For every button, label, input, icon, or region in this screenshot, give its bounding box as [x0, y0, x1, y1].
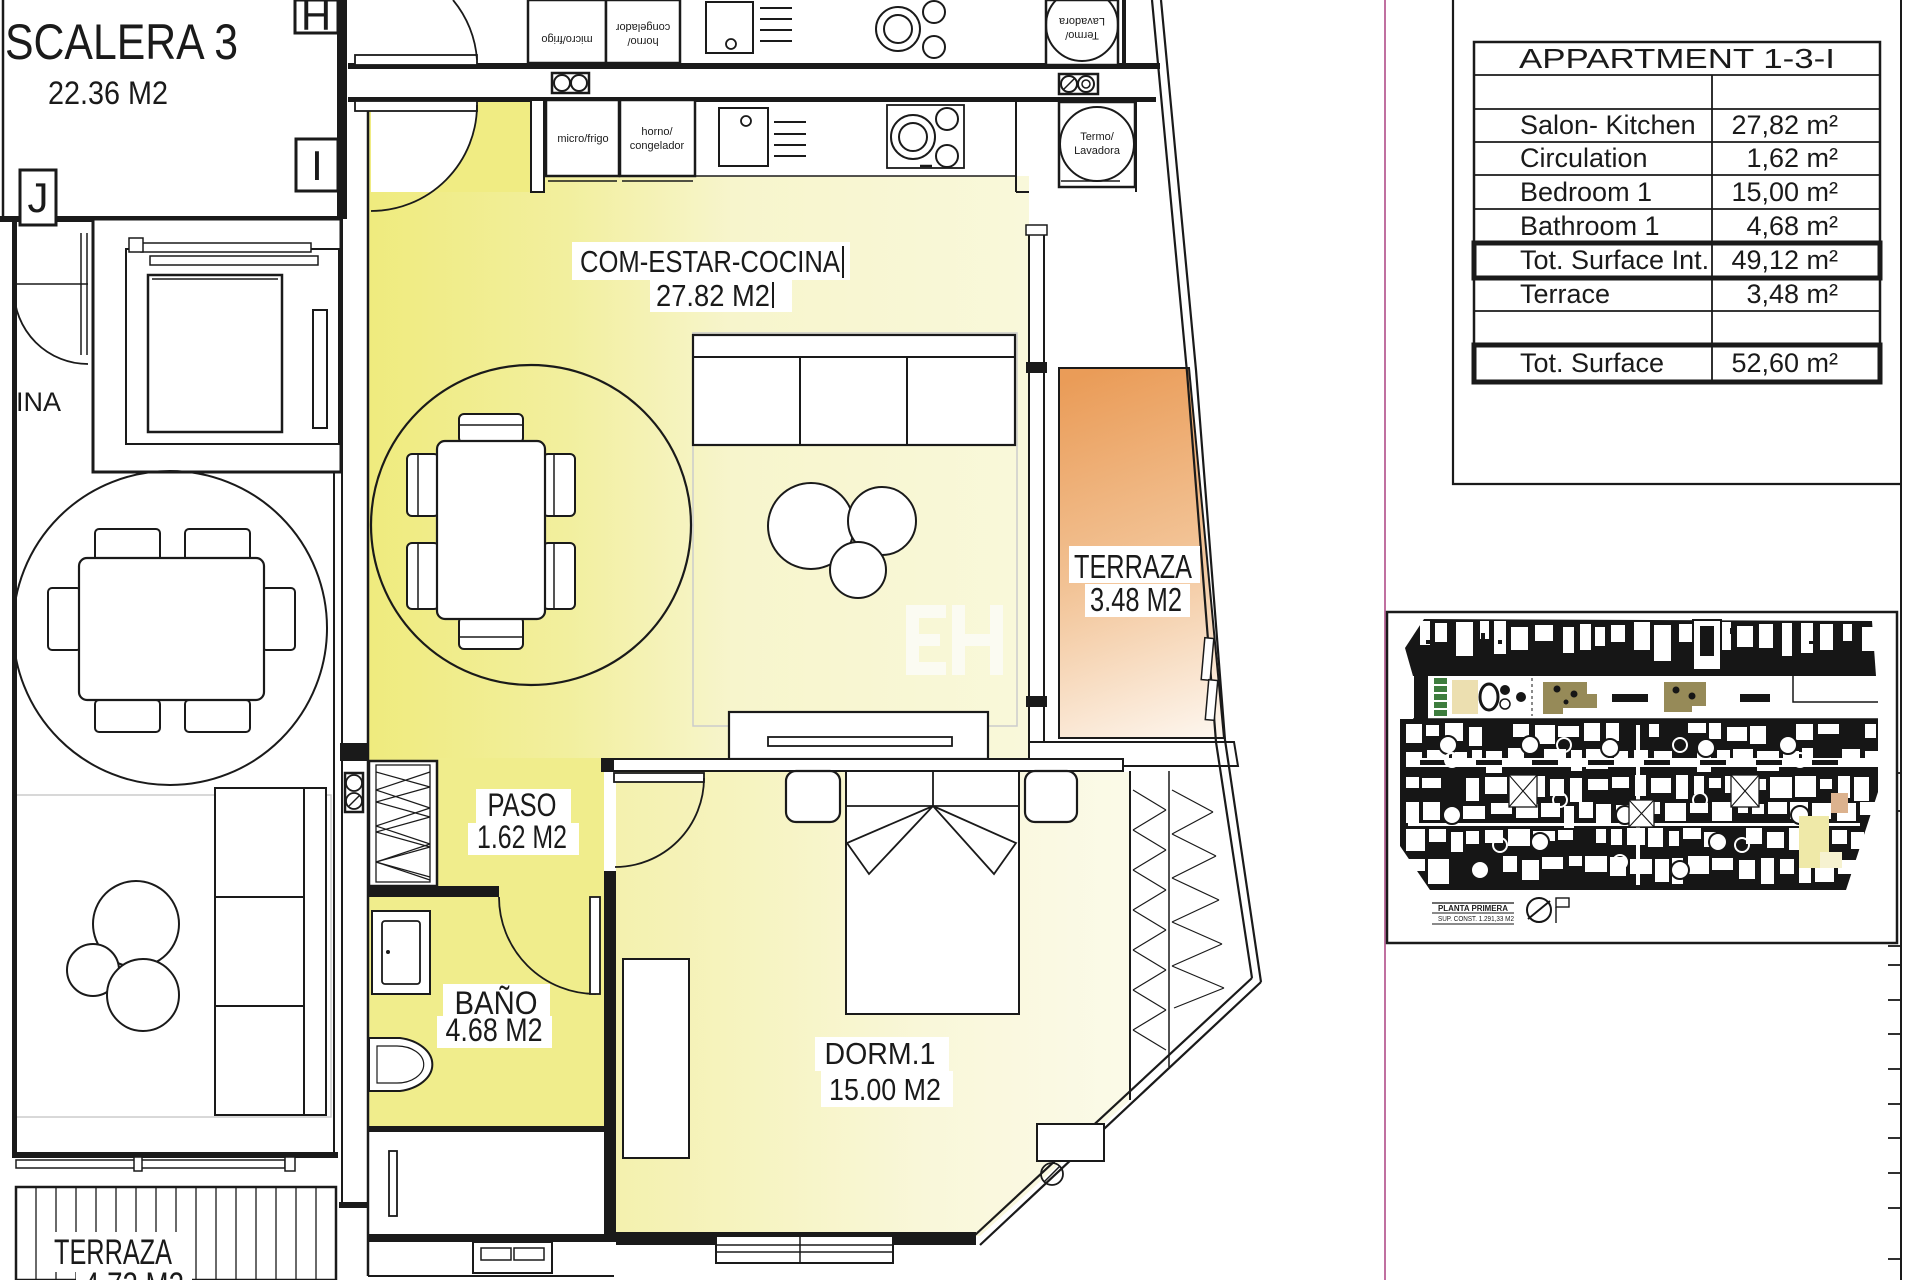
- svg-text:H: H: [301, 0, 331, 39]
- svg-text:Termo/: Termo/: [1080, 131, 1115, 143]
- svg-text:Bedroom 1: Bedroom 1: [1520, 177, 1652, 207]
- svg-text:4,68 m²: 4,68 m²: [1746, 211, 1838, 241]
- svg-text:49,12 m²: 49,12 m²: [1731, 245, 1838, 275]
- svg-text:4.68 M2: 4.68 M2: [446, 1012, 543, 1048]
- svg-text:horno/: horno/: [626, 35, 658, 47]
- svg-text:COM-ESTAR-COCINA: COM-ESTAR-COCINA: [580, 244, 840, 279]
- svg-text:27,82 m²: 27,82 m²: [1731, 110, 1838, 140]
- svg-text:PASO: PASO: [488, 787, 557, 823]
- svg-text:27.82 M2: 27.82 M2: [656, 278, 770, 313]
- svg-text:Tot. Surface: Tot. Surface: [1520, 348, 1664, 378]
- svg-text:TERRAZA: TERRAZA: [1074, 548, 1192, 585]
- svg-text:congelador: congelador: [630, 140, 685, 152]
- svg-text:Terrace: Terrace: [1520, 279, 1610, 309]
- svg-text:congelador: congelador: [615, 21, 670, 33]
- svg-text:APPARTMENT 1-3-I: APPARTMENT 1-3-I: [1519, 43, 1835, 74]
- svg-text:22.36 M2: 22.36 M2: [48, 75, 168, 111]
- svg-text:Lavadora: Lavadora: [1058, 15, 1105, 27]
- svg-text:micro/frigo: micro/frigo: [541, 33, 592, 45]
- svg-text:3,48 m²: 3,48 m²: [1746, 279, 1838, 309]
- svg-text:DORM.1: DORM.1: [825, 1036, 936, 1071]
- svg-text:Tot. Surface Int.: Tot. Surface Int.: [1520, 245, 1709, 275]
- svg-text:SUP. CONST. 1.291,33 M2: SUP. CONST. 1.291,33 M2: [1438, 916, 1514, 923]
- svg-text:PLANTA PRIMERA: PLANTA PRIMERA: [1438, 904, 1508, 913]
- svg-text:Circulation: Circulation: [1520, 143, 1648, 173]
- svg-text:SCALERA 3: SCALERA 3: [5, 14, 238, 70]
- svg-text:1.62 M2: 1.62 M2: [477, 819, 567, 855]
- svg-text:Termo/: Termo/: [1064, 29, 1099, 41]
- svg-text:3.48 M2: 3.48 M2: [1090, 581, 1182, 618]
- svg-text:Bathroom 1: Bathroom 1: [1520, 211, 1660, 241]
- svg-text:horno/: horno/: [641, 126, 673, 138]
- svg-text:I: I: [311, 142, 323, 189]
- svg-text:52,60 m²: 52,60 m²: [1731, 348, 1838, 378]
- svg-text:15.00 M2: 15.00 M2: [829, 1072, 941, 1107]
- svg-text:1,62 m²: 1,62 m²: [1746, 143, 1838, 173]
- svg-text:J: J: [28, 174, 49, 221]
- svg-text:micro/frigo: micro/frigo: [557, 133, 608, 145]
- svg-text:15,00 m²: 15,00 m²: [1731, 177, 1838, 207]
- svg-text:INA: INA: [16, 387, 61, 417]
- svg-text:4.72 M2: 4.72 M2: [84, 1266, 184, 1280]
- svg-text:Salon- Kitchen: Salon- Kitchen: [1520, 110, 1696, 140]
- svg-text:Lavadora: Lavadora: [1074, 145, 1121, 157]
